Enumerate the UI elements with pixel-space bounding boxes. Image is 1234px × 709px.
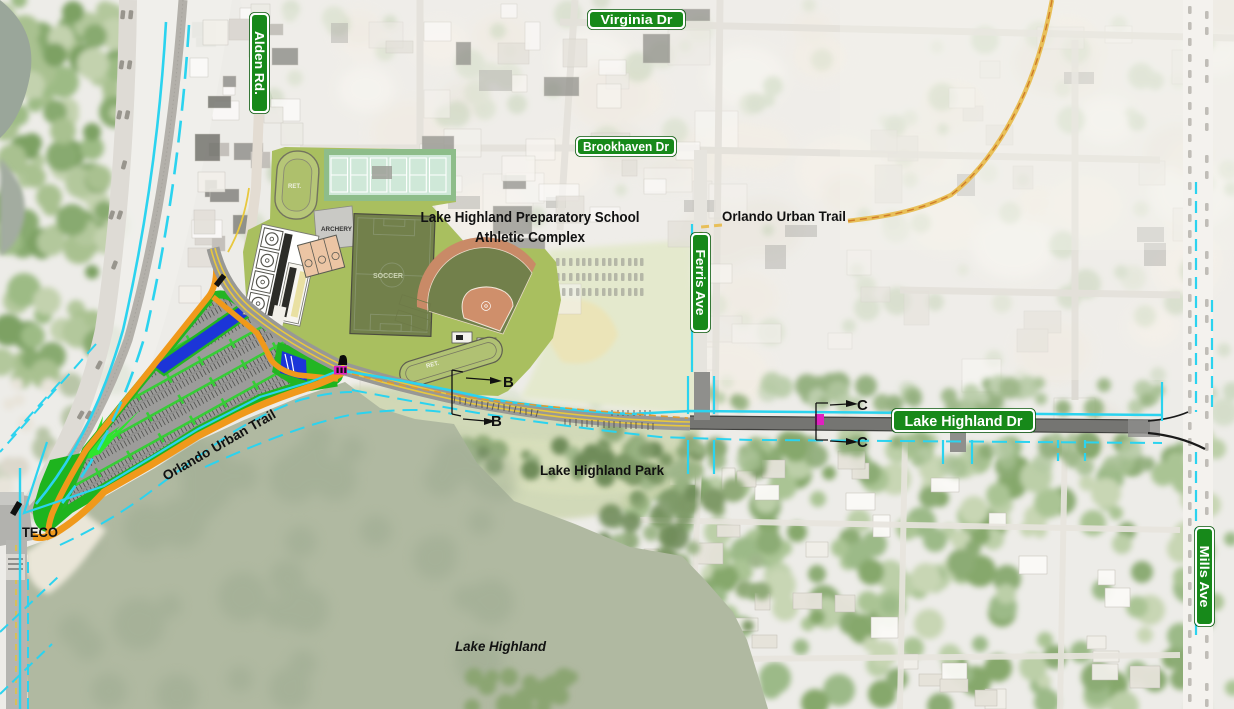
svg-text:C: C [857, 434, 868, 451]
svg-text:TECO: TECO [22, 525, 58, 540]
svg-text:Lake Highland Park: Lake Highland Park [540, 463, 664, 478]
svg-text:SOCCER: SOCCER [373, 273, 403, 280]
svg-text:Alden Rd.: Alden Rd. [252, 31, 267, 95]
svg-text:Lake Highland Preparatory Scho: Lake Highland Preparatory School [421, 210, 640, 226]
svg-text:RET.: RET. [288, 184, 301, 190]
svg-text:Lake Highland: Lake Highland [455, 638, 546, 654]
svg-text:B: B [503, 374, 514, 391]
svg-text:B: B [491, 413, 502, 430]
svg-text:ARCHERY: ARCHERY [321, 226, 353, 233]
svg-text:Ferris Ave: Ferris Ave [693, 250, 708, 316]
svg-text:Virginia Dr: Virginia Dr [601, 12, 673, 27]
svg-text:Lake Highland Dr: Lake Highland Dr [905, 413, 1023, 430]
svg-text:Athletic Complex: Athletic Complex [475, 230, 585, 246]
svg-text:Orlando Urban Trail: Orlando Urban Trail [722, 209, 846, 224]
svg-text:Brookhaven Dr: Brookhaven Dr [583, 140, 669, 154]
svg-text:Mills Ave: Mills Ave [1197, 546, 1212, 608]
svg-text:C: C [857, 397, 868, 414]
